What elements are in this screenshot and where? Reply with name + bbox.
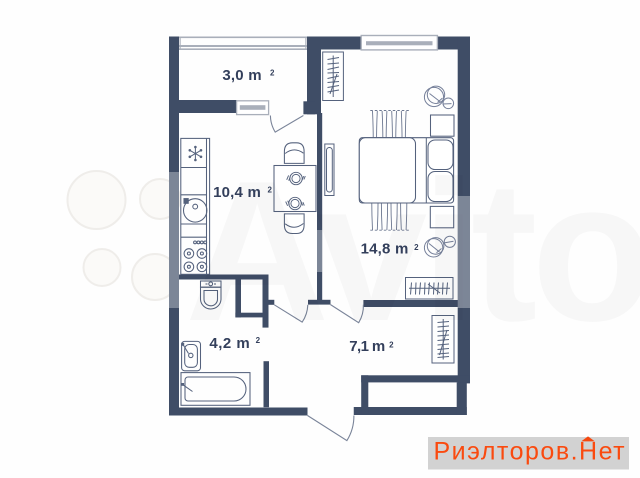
svg-text:14,8 m: 14,8 m [361, 241, 409, 258]
svg-text:3,0 m: 3,0 m [222, 67, 261, 84]
svg-text:Avito: Avito [185, 140, 640, 363]
svg-text:Риэлторов.Нет: Риэлторов.Нет [434, 438, 627, 466]
svg-text:10,4 m: 10,4 m [213, 184, 261, 201]
svg-text:2: 2 [256, 336, 261, 345]
svg-text:2: 2 [414, 243, 419, 252]
svg-text:4,2 m: 4,2 m [209, 335, 250, 352]
svg-text:2: 2 [268, 186, 273, 195]
svg-text:2: 2 [270, 68, 275, 77]
svg-text:2: 2 [389, 340, 394, 349]
svg-text:7,1 m: 7,1 m [349, 338, 385, 355]
